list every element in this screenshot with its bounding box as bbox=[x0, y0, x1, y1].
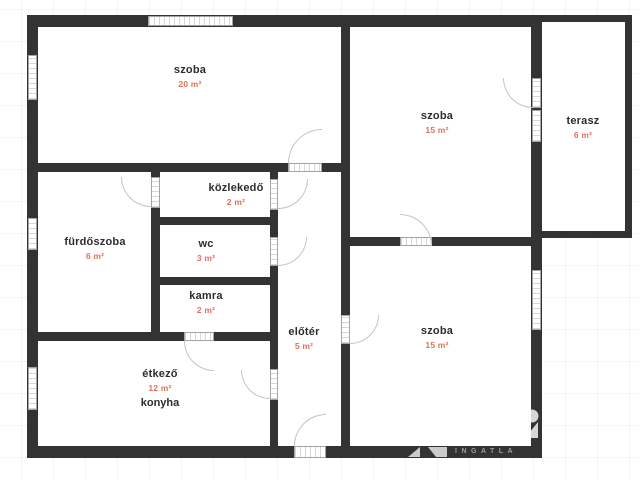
door-entrance-leaf bbox=[294, 446, 326, 458]
room-label-etkezo-konyha: étkező 12 m² konyha bbox=[141, 368, 180, 409]
room-name: wc bbox=[197, 238, 215, 250]
room-name: kamra bbox=[189, 290, 222, 302]
room-name: étkező bbox=[141, 368, 180, 380]
room-name: szoba bbox=[421, 325, 453, 337]
room-name: terasz bbox=[567, 115, 600, 127]
door-terasz-leaf bbox=[532, 78, 541, 108]
room-label-kozlekedo: közlekedő 2 m² bbox=[209, 182, 264, 207]
room-label-wc: wc 3 m² bbox=[197, 238, 215, 263]
door-szoba1-leaf bbox=[288, 163, 322, 172]
door-kamra-leaf bbox=[184, 332, 214, 341]
floor-plan: szoba 20 m² szoba 15 m² terasz 6 m² fürd… bbox=[0, 0, 640, 480]
watermark-logo-icon bbox=[524, 409, 540, 439]
window-top-szoba1 bbox=[148, 16, 233, 26]
door-wc-leaf bbox=[270, 237, 278, 266]
watermark-text: INGATLA bbox=[455, 448, 517, 455]
wall-szoba2-szoba3 bbox=[350, 237, 531, 246]
room-area: 6 m² bbox=[64, 251, 125, 261]
window-left-furdoszoba bbox=[28, 218, 37, 250]
wall-terrace-right bbox=[625, 15, 632, 238]
window-right-szoba3 bbox=[532, 270, 541, 330]
room-area: 6 m² bbox=[567, 130, 600, 140]
wall-kozlekedo-wc bbox=[151, 217, 278, 225]
room-secondary-name: konyha bbox=[141, 397, 180, 409]
wall-center-vertical bbox=[341, 27, 350, 446]
door-furdoszoba-leaf bbox=[151, 177, 160, 208]
wall-outer-top bbox=[27, 15, 542, 27]
room-label-eloter: előtér 5 m² bbox=[288, 326, 319, 351]
room-name: fürdőszoba bbox=[64, 236, 125, 248]
room-area: 5 m² bbox=[288, 341, 319, 351]
door-eloter-szoba3-leaf bbox=[341, 315, 350, 344]
wall-terrace-top bbox=[542, 15, 632, 22]
wall-wc-kamra bbox=[151, 277, 278, 285]
room-name: szoba bbox=[421, 110, 453, 122]
door-kozlekedo-leaf bbox=[270, 179, 278, 210]
room-label-terasz: terasz 6 m² bbox=[567, 115, 600, 140]
room-area: 3 m² bbox=[197, 253, 215, 263]
room-area: 15 m² bbox=[421, 340, 453, 350]
window-left-etkezo bbox=[28, 367, 37, 410]
window-terasz bbox=[532, 110, 541, 142]
room-label-szoba2: szoba 15 m² bbox=[421, 110, 453, 135]
watermark-logo-fragment bbox=[406, 445, 450, 458]
wall-etkezo-top bbox=[38, 332, 278, 341]
room-name: közlekedő bbox=[209, 182, 264, 194]
room-label-furdoszoba: fürdőszoba 6 m² bbox=[64, 236, 125, 261]
wall-terrace-bottom bbox=[542, 231, 625, 238]
room-label-szoba1: szoba 20 m² bbox=[174, 64, 206, 89]
room-area: 20 m² bbox=[174, 79, 206, 89]
room-area: 2 m² bbox=[189, 305, 222, 315]
room-name: előtér bbox=[288, 326, 319, 338]
window-left-szoba1 bbox=[28, 55, 37, 100]
room-name: szoba bbox=[174, 64, 206, 76]
room-area: 2 m² bbox=[209, 197, 264, 207]
room-label-kamra: kamra 2 m² bbox=[189, 290, 222, 315]
room-label-szoba3: szoba 15 m² bbox=[421, 325, 453, 350]
door-etkezo-leaf bbox=[270, 369, 278, 400]
room-area: 12 m² bbox=[141, 383, 180, 393]
room-area: 15 m² bbox=[421, 125, 453, 135]
